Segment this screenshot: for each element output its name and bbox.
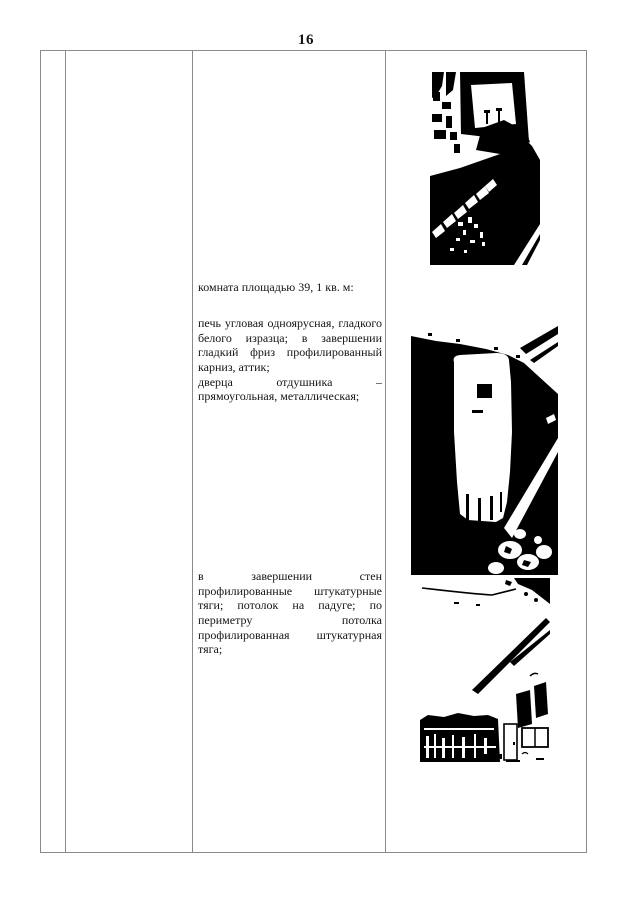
page-number: 16 [28,32,584,49]
ceiling-line: профилированные штукатурные [198,584,382,599]
document-page: 16 комната площадью 39, 1 кв. м: печь уг… [0,0,640,905]
stove-line: карниз, аттик; [198,360,382,375]
photo-window-sill-and-tiles [430,72,540,265]
stove-line: гладкий фриз профилированный [198,345,382,360]
stove-line: печь угловая одноярусная, гладкого [198,316,382,331]
room-heading-block: комната площадью 39, 1 кв. м: [198,280,382,295]
photo-room-ceiling-cornice [418,578,550,765]
ceiling-line: профилированная штукатурная [198,628,382,643]
column-divider-2 [192,51,193,852]
column-divider-1 [65,51,66,852]
stove-line: прямоугольная, металлическая; [198,389,382,404]
stove-line: белого изразца; в завершении [198,331,382,346]
stove-line: дверца отдушника – [198,375,382,390]
ceiling-description-paragraph: в завершении стен профилированные штукат… [198,569,382,657]
column-divider-3 [385,51,386,852]
room-heading: комната площадью 39, 1 кв. м: [198,280,382,295]
ceiling-line: периметру потолка [198,613,382,628]
ceiling-line: тяга; [198,642,382,657]
ceiling-line: тяги; потолок на падуге; по [198,598,382,613]
stove-description-paragraph: печь угловая одноярусная, гладкого белог… [198,316,382,404]
photo-corner-tiled-stove [408,322,558,575]
document-table: комната площадью 39, 1 кв. м: печь углов… [40,50,587,853]
ceiling-line: в завершении стен [198,569,382,584]
